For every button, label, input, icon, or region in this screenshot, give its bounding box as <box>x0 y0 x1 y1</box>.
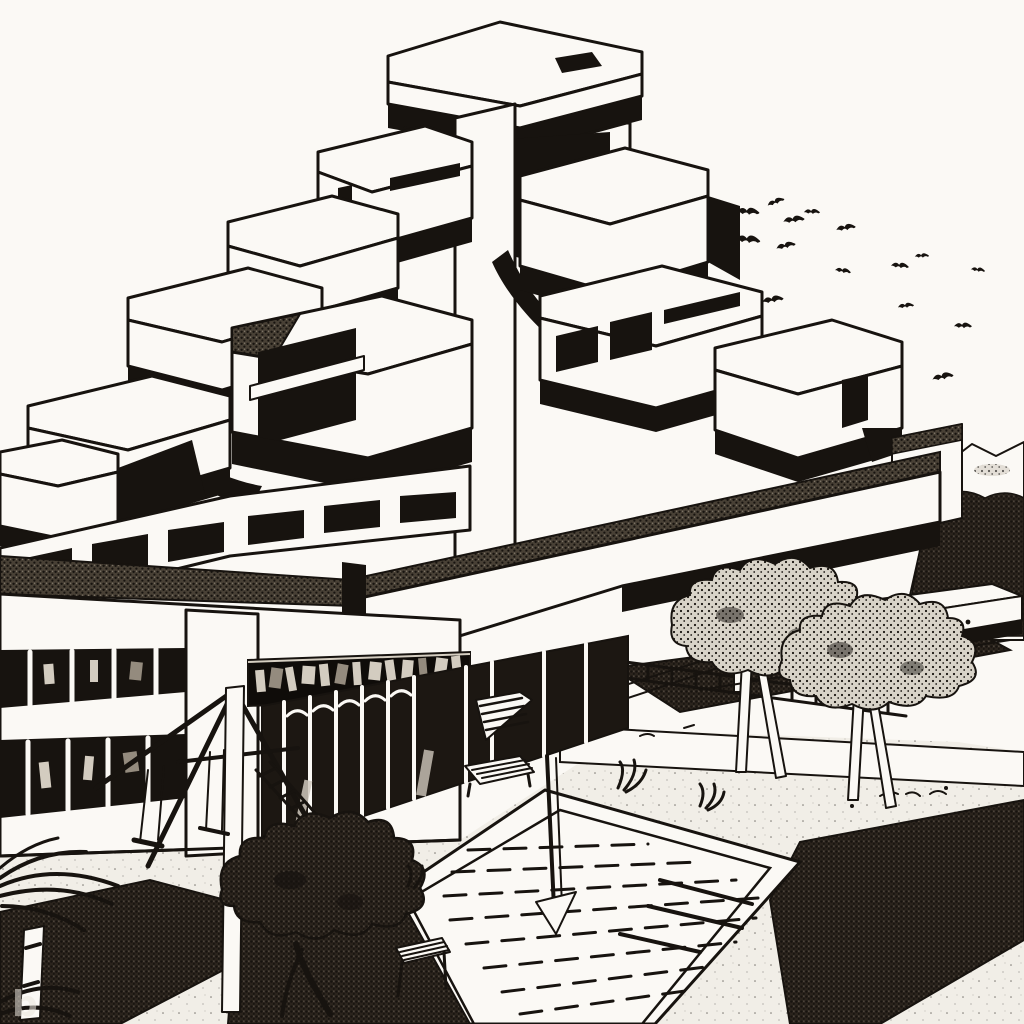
ink-drawing: b <box>0 0 1024 1024</box>
right-module-3 <box>715 320 902 482</box>
watermark-b: b <box>12 984 38 1024</box>
center-module <box>232 296 472 492</box>
illustration-canvas: b <box>0 0 1024 1024</box>
